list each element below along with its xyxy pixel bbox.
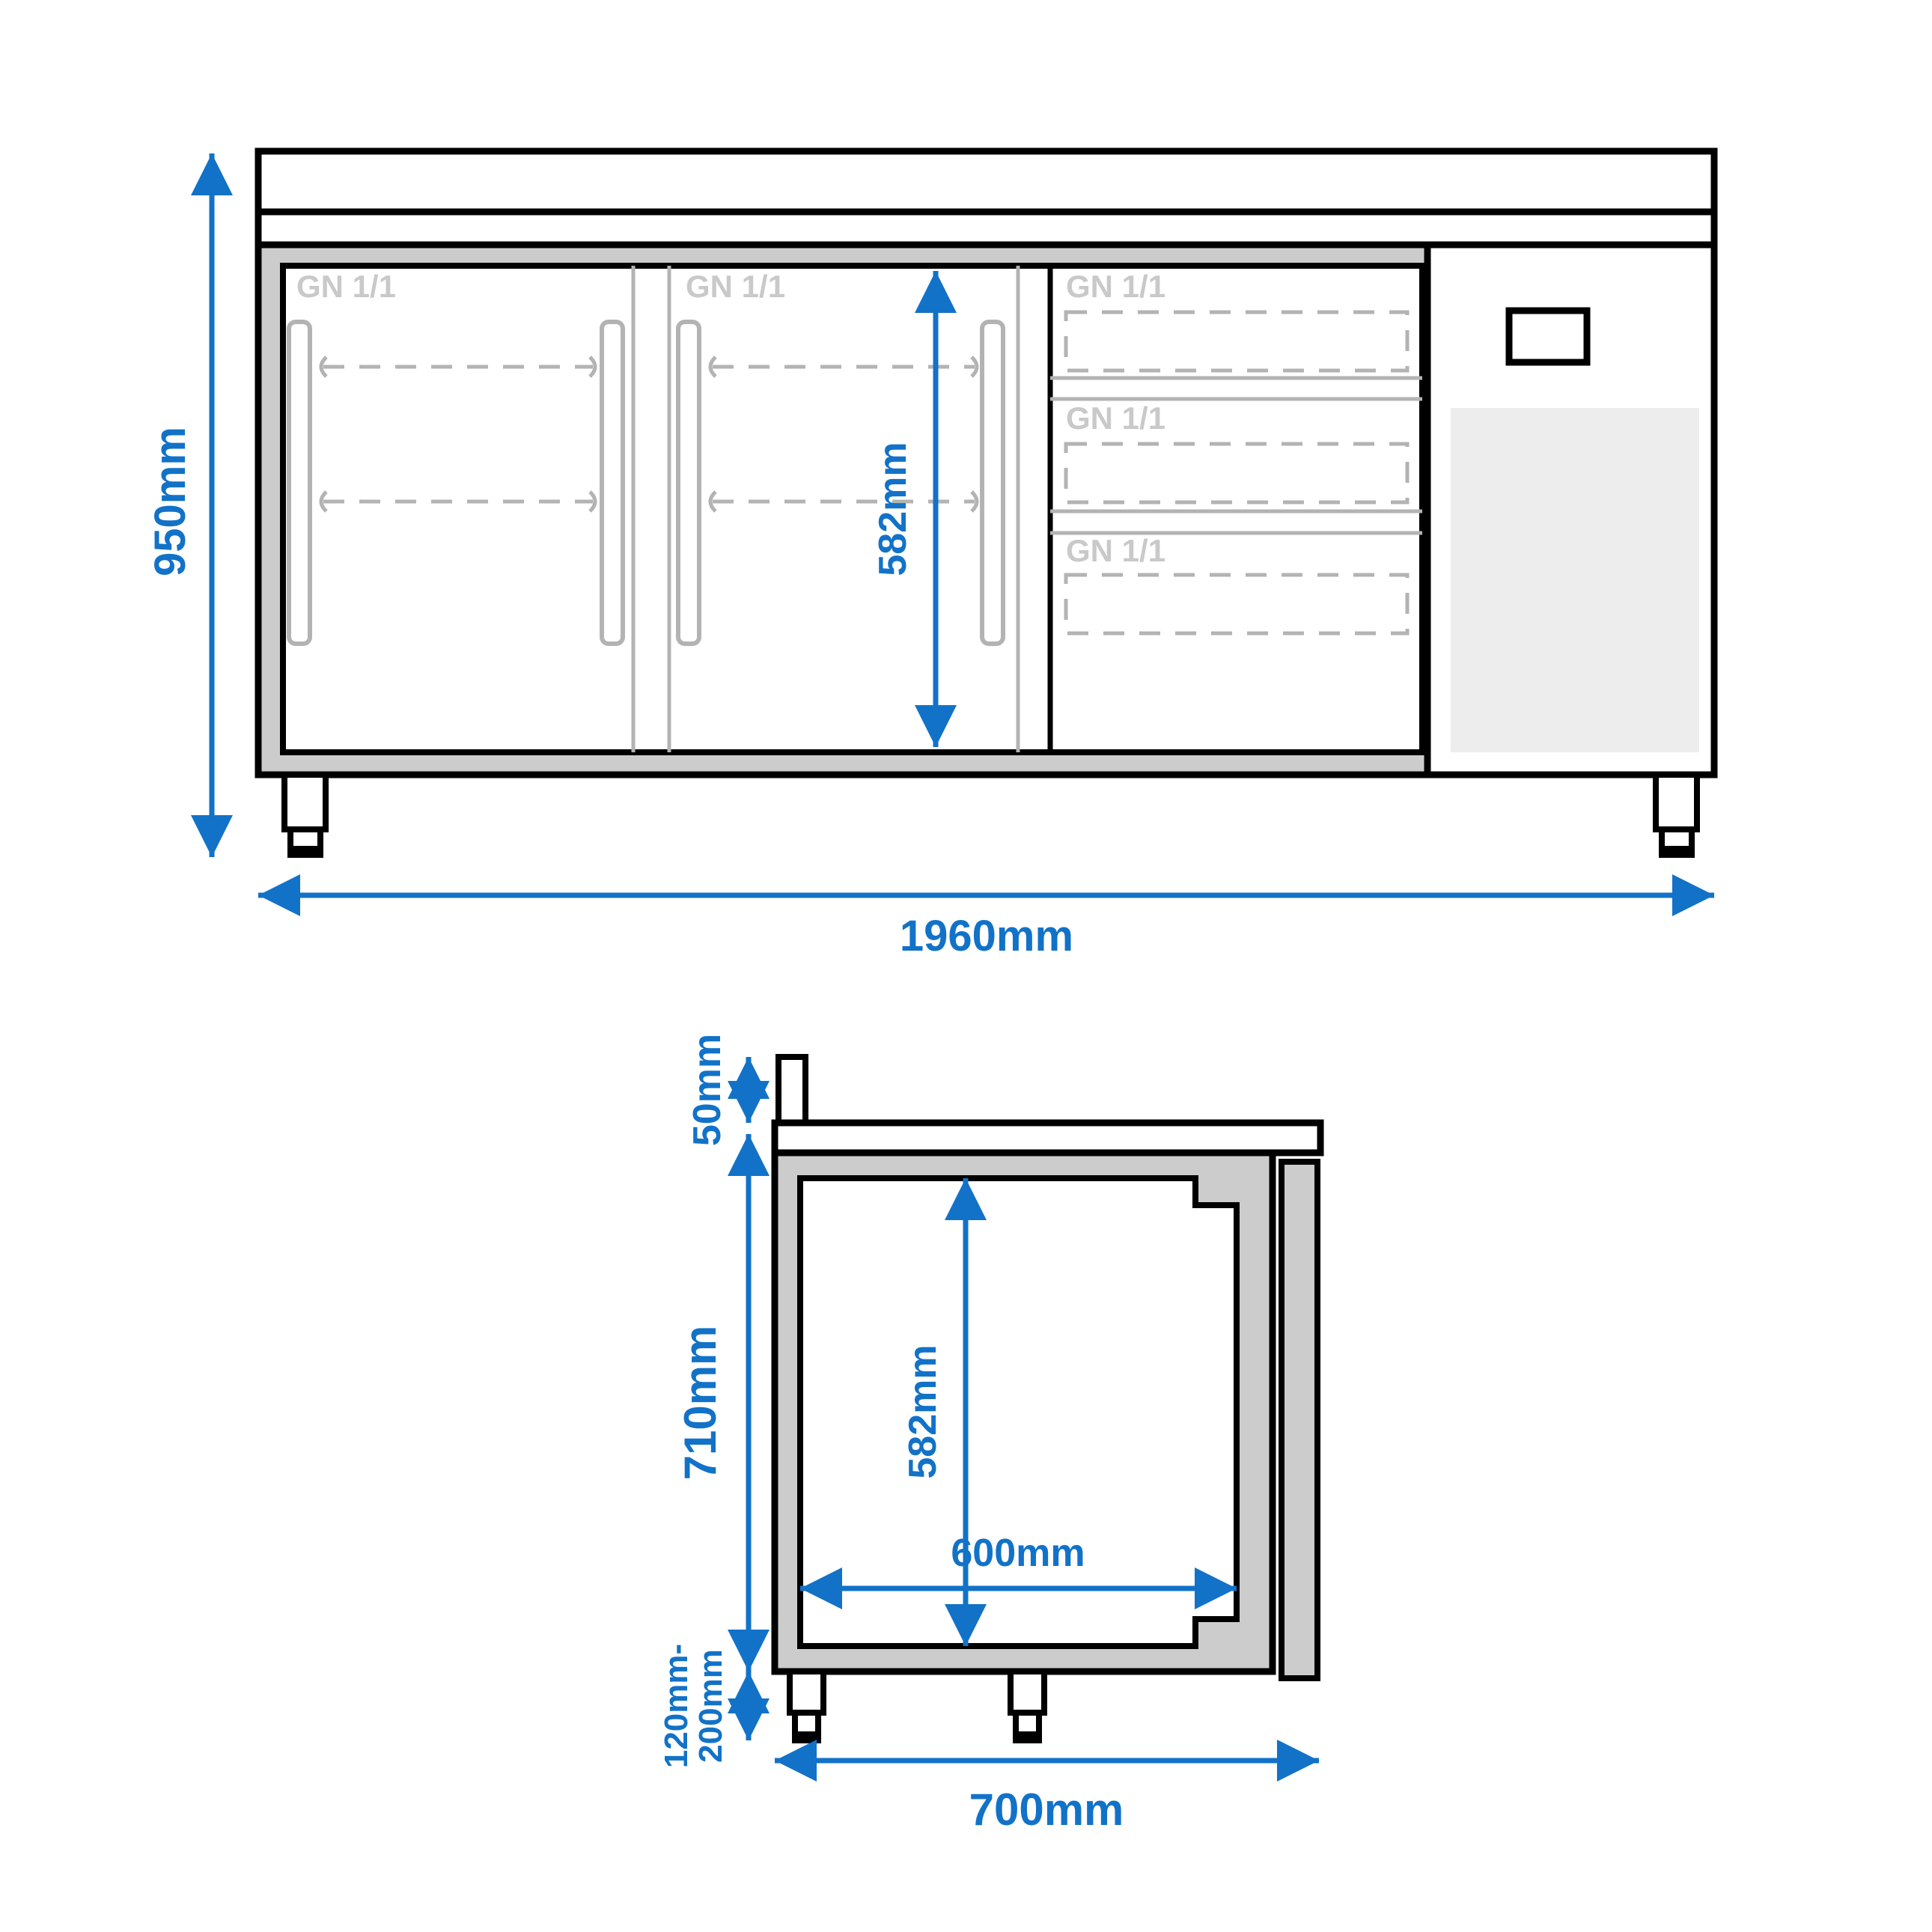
body-height-dimension-label: 710mm [675,1326,725,1481]
height-dimension-label: 950mm [146,427,195,576]
upstand-dimension-label: 50mm [686,1034,729,1146]
worktop-edge-front [258,212,1714,245]
upstand [778,1057,805,1126]
side-leg-front [790,1672,823,1740]
front-leg-right [1656,775,1697,855]
vent-panel [1451,408,1699,752]
worktop-side [775,1123,1320,1153]
refrigerated-counter-drawing: GN 1/1 GN 1/1 GN 1/1 GN 1/1 GN 1/1 950mm… [0,0,1932,1932]
interior-height-dimension-label: 582mm [871,442,915,576]
door1-gn-label: GN 1/1 [296,269,396,304]
side-interior-height-dimension-label: 582mm [901,1344,945,1478]
side-leg-rear [1011,1672,1044,1740]
drawer3-gn-label: GN 1/1 [1066,533,1165,568]
width-dimension-label: 1960mm [900,912,1073,960]
door-area [283,266,1422,752]
drawer1-gn-label: GN 1/1 [1066,269,1165,304]
control-display [1509,311,1587,362]
side-door [1282,1162,1317,1678]
leg-height-dimension-label-line1: 120mm- [658,1644,695,1768]
door2-gn-label: GN 1/1 [686,269,785,304]
side-view: 50mm 710mm 120mm- 200mm 582mm 600mm 700m… [658,1034,1320,1835]
worktop-front [258,151,1714,212]
leg-height-dimension-label-line2: 200mm [692,1649,729,1763]
total-depth-dimension-label: 700mm [969,1785,1124,1835]
front-leg-left [284,775,326,855]
technical-drawing-page: GN 1/1 GN 1/1 GN 1/1 GN 1/1 GN 1/1 950mm… [0,0,1932,1932]
drawer2-gn-label: GN 1/1 [1066,400,1165,436]
side-interior [800,1178,1237,1646]
interior-depth-dimension-label: 600mm [951,1532,1085,1575]
front-view: GN 1/1 GN 1/1 GN 1/1 GN 1/1 GN 1/1 950mm… [146,151,1714,960]
